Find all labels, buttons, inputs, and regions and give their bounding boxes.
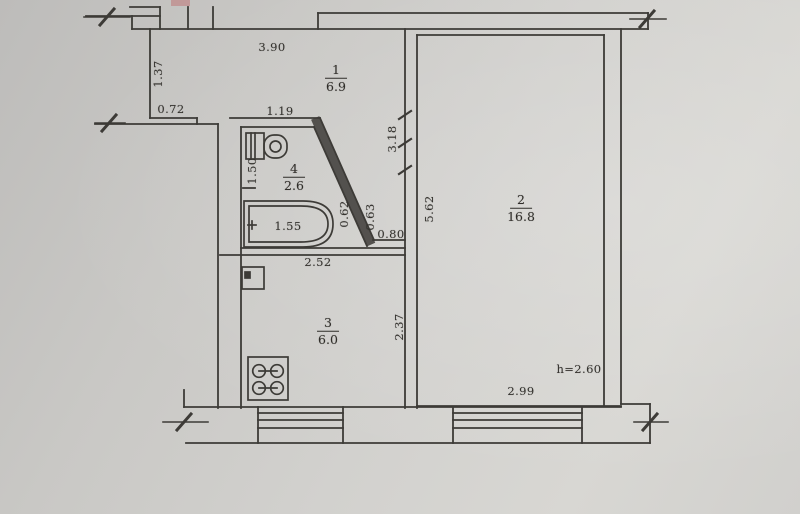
room-area: 6.0 <box>317 332 339 347</box>
dim-passage-width: 0.80 <box>377 227 404 241</box>
dim-kitchen-top: 2.52 <box>304 255 331 269</box>
dim-bathroom-left: 1.50 <box>245 157 259 184</box>
ceiling-height-note: h=2.60 <box>556 362 601 376</box>
center-wall <box>405 29 417 408</box>
dim-hall-width: 3.90 <box>258 40 285 54</box>
floor-plan-drawing <box>0 0 800 514</box>
room-label-living-room: 2 16.8 <box>507 193 535 224</box>
dim-living-room-depth: 5.62 <box>422 195 436 222</box>
dim-hall-right: 3.18 <box>385 125 399 152</box>
dim-niche-depth: 1.37 <box>151 60 165 87</box>
stove-icon <box>248 357 288 400</box>
dim-diagonal-wall: 0.63 <box>363 203 377 230</box>
room-area: 2.6 <box>283 178 305 193</box>
left-walls <box>95 29 241 408</box>
dim-niche-bottom: 0.72 <box>157 102 184 116</box>
room-label-kitchen: 3 6.0 <box>317 316 339 347</box>
living-room-walls <box>417 29 650 443</box>
dim-kitchen-right: 2.37 <box>392 313 406 340</box>
toilet-icon <box>246 133 287 159</box>
dim-bathroom-top: 1.19 <box>266 104 293 118</box>
top-wall <box>86 7 648 29</box>
dim-living-room-width: 2.99 <box>507 384 534 398</box>
floor-plan-sheet: 1 6.9 2 16.8 3 6.0 4 2.6 3.90 1.37 0.72 … <box>0 0 800 514</box>
kitchen-sink-icon <box>242 267 264 289</box>
room-area: 6.9 <box>325 79 347 94</box>
room-label-hall: 1 6.9 <box>325 63 347 94</box>
dim-tub-end-gap: 0.62 <box>337 200 351 227</box>
red-stamp-mark <box>171 0 190 6</box>
room-number: 1 <box>325 63 347 79</box>
dim-bathtub-length: 1.55 <box>274 219 301 233</box>
room-number: 2 <box>510 193 532 209</box>
room-number: 4 <box>283 162 305 178</box>
room-label-bathroom: 4 2.6 <box>283 162 305 193</box>
living-room-window <box>453 407 582 443</box>
room-number: 3 <box>317 316 339 332</box>
kitchen-window <box>258 407 343 443</box>
room-area: 16.8 <box>507 209 535 224</box>
